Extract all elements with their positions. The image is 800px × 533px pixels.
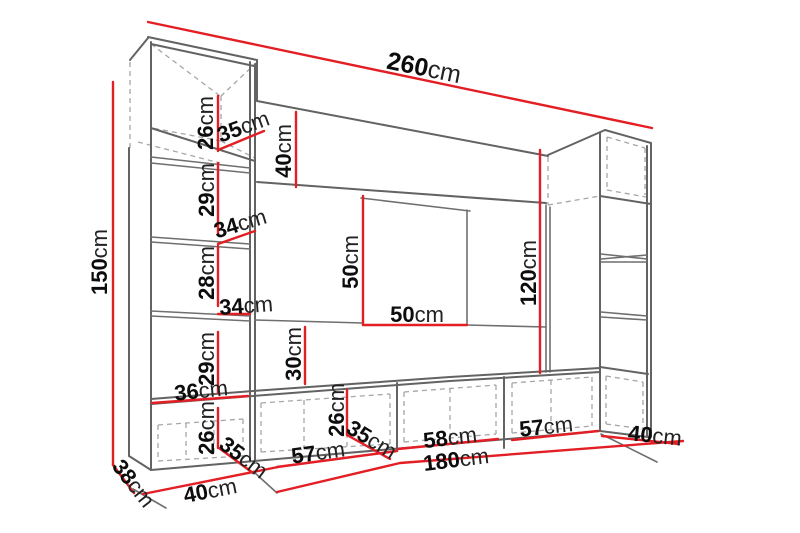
dim-shelf1-height: 29cm — [194, 163, 219, 217]
dim-stand-cab3-width: 57cm — [518, 411, 574, 441]
dim-middle-gap-height: 30cm — [281, 327, 306, 381]
dim-left-depth: 38cm — [108, 454, 161, 512]
dim-base-width: 36cm — [173, 375, 229, 405]
wall-unit-drawing: 260cm 150cm 26cm 35cm 40cm 29cm 34cm 28c… — [0, 0, 800, 533]
dim-tv-panel-height: 50cm — [338, 235, 363, 289]
right-column-shelves — [601, 254, 647, 320]
dim-bottom-left-width: 40cm — [181, 473, 239, 508]
dim-left-height: 150cm — [87, 229, 112, 295]
dim-shelf2-height: 28cm — [194, 246, 219, 300]
dim-stand-cab1-width: 57cm — [290, 436, 347, 468]
dimension-diagram: 260cm 150cm 26cm 35cm 40cm 29cm 34cm 28c… — [0, 0, 800, 533]
dim-top-shelf-height: 40cm — [271, 124, 296, 178]
dim-shelf2-width: 34cm — [218, 291, 273, 320]
right-column — [548, 130, 651, 437]
top-shelf-band — [257, 101, 548, 203]
dim-base-cab-height: 26cm — [194, 401, 219, 455]
dim-total-width: 260cm — [384, 47, 463, 89]
dim-tv-panel-width: 50cm — [390, 302, 444, 327]
dim-right-opening-height: 120cm — [516, 240, 541, 306]
dim-stand-cab-height: 26cm — [324, 383, 349, 437]
